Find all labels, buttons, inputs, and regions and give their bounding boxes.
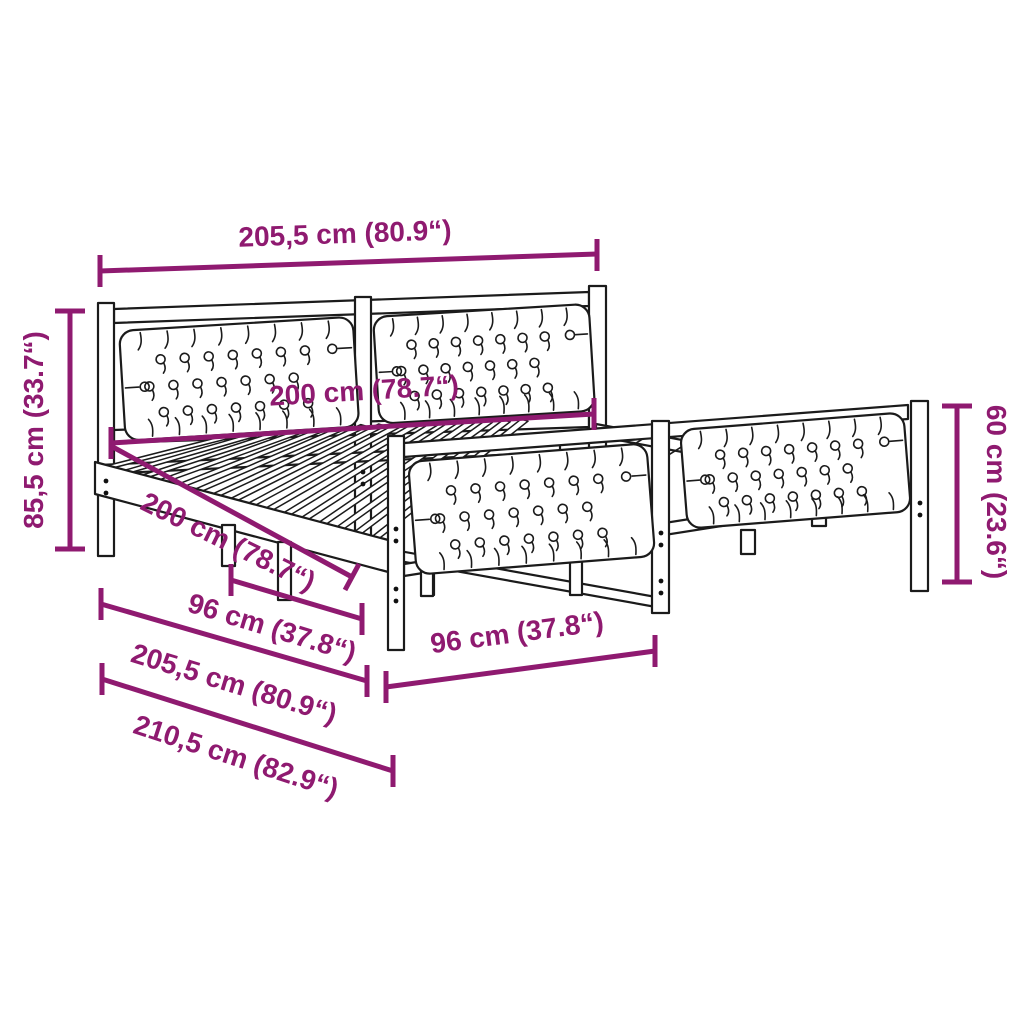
screw-dot xyxy=(659,591,664,596)
footboard-panel-left xyxy=(408,443,655,574)
screw-dot xyxy=(361,470,366,475)
dim-headboard-height-label: 85,5 cm (33.7“) xyxy=(18,331,49,529)
dim-slat-right: 96 cm (37.8“) xyxy=(386,606,655,703)
dim-slat-right-label: 96 cm (37.8“) xyxy=(428,606,605,659)
footboard-bracket-b xyxy=(741,530,755,554)
screw-dot xyxy=(394,539,399,544)
screw-dot xyxy=(394,599,399,604)
dim-headboard-height: 85,5 cm (33.7“) xyxy=(18,311,85,549)
screw-dot xyxy=(104,491,109,496)
screw-dot xyxy=(659,531,664,536)
screw-dot xyxy=(918,501,923,506)
screw-dot xyxy=(659,579,664,584)
footboard-panel-right xyxy=(680,412,911,528)
screw-dot xyxy=(918,513,923,518)
dim-top-width-label: 205,5 cm (80.9“) xyxy=(238,214,452,252)
bed-frame-illustration: 205,5 cm (80.9“) 85,5 cm (33.7“) 200 cm … xyxy=(0,0,1024,1024)
footboard-right-post xyxy=(911,401,928,591)
screw-dot xyxy=(394,527,399,532)
screw-dot xyxy=(361,482,366,487)
screw-dot xyxy=(659,543,664,548)
bed-dimension-diagram: 205,5 cm (80.9“) 85,5 cm (33.7“) 200 cm … xyxy=(0,0,1024,1024)
dim-top-width: 205,5 cm (80.9“) xyxy=(100,214,597,287)
dim-footboard-height-label: 60 cm (23.6“) xyxy=(981,405,1012,579)
dim-footboard-height: 60 cm (23.6“) xyxy=(942,405,1012,582)
footboard-center-post xyxy=(652,421,669,613)
screw-dot xyxy=(394,587,399,592)
screw-dot xyxy=(104,479,109,484)
headboard-panel-right xyxy=(373,304,595,424)
